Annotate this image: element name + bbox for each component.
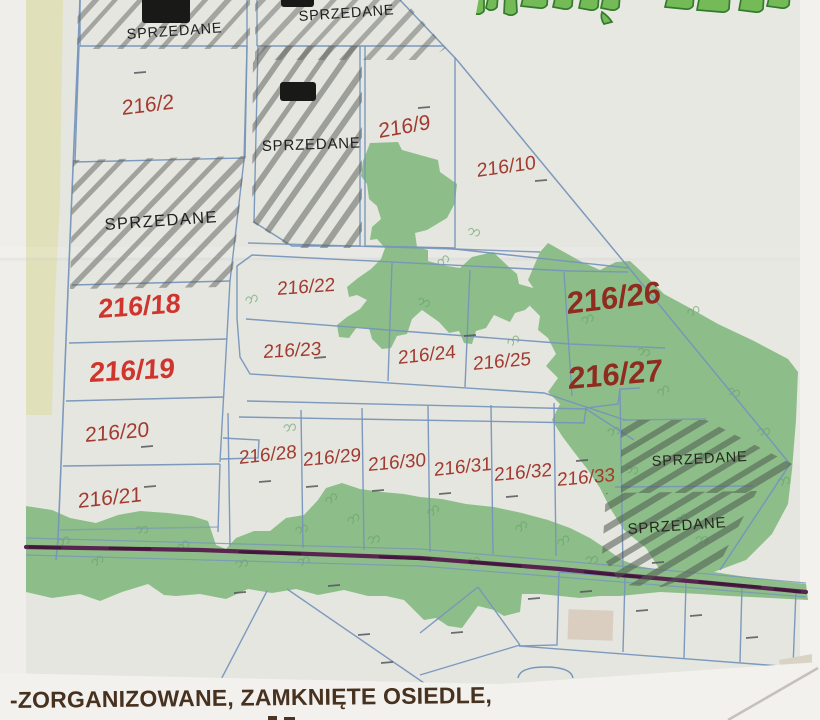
svg-text:216/18: 216/18 [98,287,181,324]
svg-text:216/23: 216/23 [263,339,322,363]
svg-text:216/19: 216/19 [89,352,176,388]
svg-text:SPRZEDANE: SPRZEDANE [262,135,361,155]
svg-text:-ZORGANIZOWANE, ZAMKNIĘTE OSIE: -ZORGANIZOWANE, ZAMKNIĘTE OSIEDLE, [10,682,492,713]
svg-text:216/22: 216/22 [277,275,336,300]
